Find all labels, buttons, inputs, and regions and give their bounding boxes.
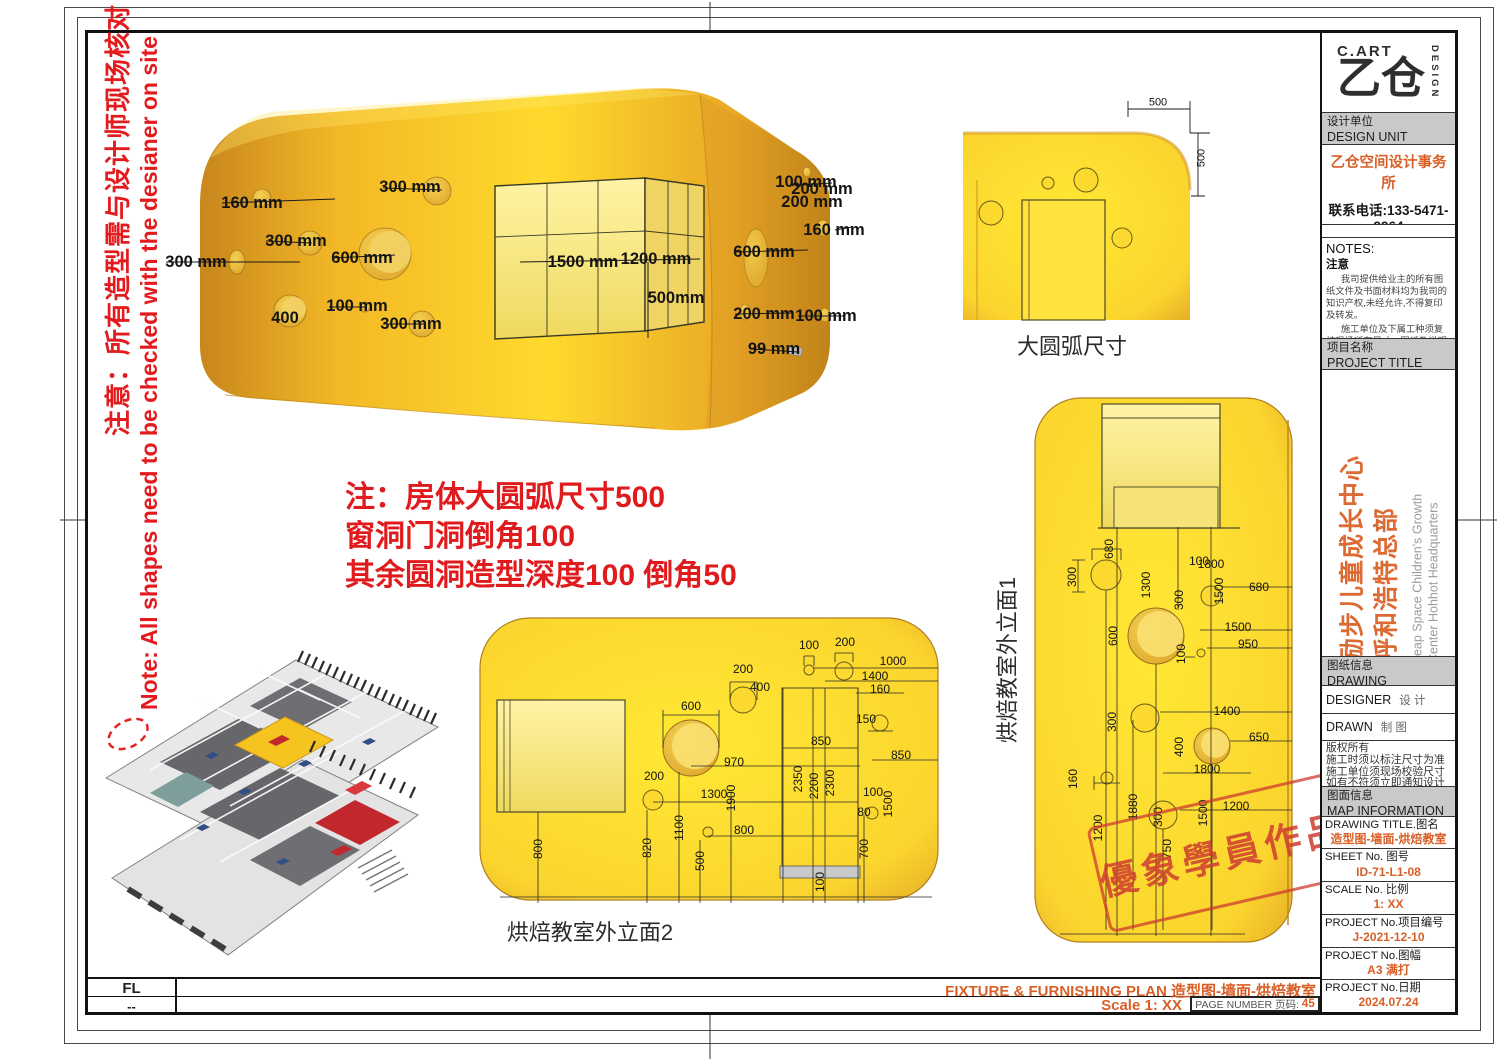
project-no-value: J-2021-12-10	[1325, 930, 1452, 946]
design-unit-header: 设计单位 DESIGN UNIT	[1322, 113, 1455, 145]
drawing-info-en: DRAWING INFORMATION	[1327, 674, 1450, 687]
project-no-row: PROJECT No.项目编号 J-2021-12-10	[1322, 915, 1455, 948]
project-title-header-en: PROJECT TITLE	[1327, 356, 1450, 371]
note-line-2: 窗洞门洞倒角100	[345, 517, 737, 556]
project-no-label: PROJECT No.项目编号	[1325, 916, 1452, 930]
design-unit-en: DESIGN UNIT	[1327, 130, 1450, 145]
drawing-sheet: 160 mm300 mm300 mm300 mm600 mm400100 mm3…	[0, 0, 1500, 1061]
logo-glyph: 乙仓	[1337, 57, 1425, 101]
elevation2-caption: 烘焙教室外立面2	[507, 915, 673, 947]
main-3d-view	[166, 88, 852, 430]
dimension-note: 注：房体大圆弧尺寸500 窗洞门洞倒角100 其余圆洞造型深度100 倒角50	[345, 478, 737, 595]
corner-detail-caption: 大圆弧尺寸	[1017, 329, 1127, 361]
page-number-label: PAGE NUMBER 页码:	[1195, 997, 1299, 1012]
sheet-no-row: SHEET No. 图号 ID-71-L1-08	[1322, 849, 1455, 882]
project-name-zh-line2: 呼和浩特总部	[1370, 370, 1404, 657]
location-marker-circle	[103, 713, 152, 756]
designer-zh: 设 计	[1399, 692, 1425, 708]
drawn-zh: 制 图	[1381, 719, 1407, 735]
designer-row: DESIGNER 设 计	[1322, 686, 1455, 714]
drawing-title-value: 造型图-墙面-烘焙教室	[1325, 832, 1452, 848]
elevation2-view	[480, 618, 938, 903]
date-row: PROJECT No.日期 2024.07.24	[1322, 980, 1455, 1012]
logo-design-vertical: DESIGN	[1429, 45, 1440, 99]
drawing-info-header: 图纸信息 DRAWING INFORMATION	[1322, 657, 1455, 686]
notes-paragraph-1: 我司提供给业主的所有图纸文件及书面材料均为我司的知识产权,未经允许,不得复印及转…	[1326, 273, 1451, 321]
project-name-en-line1: Leap Space Children's Growth	[1409, 370, 1425, 657]
sheet-size-value: A3 满打	[1325, 963, 1452, 979]
note-line-1: 注：房体大圆弧尺寸500	[345, 478, 737, 517]
company-logo: C.ART 乙仓 DESIGN	[1322, 33, 1455, 113]
sheet-size-label: PROJECT No.图幅	[1325, 949, 1452, 963]
sheet-no-value: ID-71-L1-08	[1325, 865, 1452, 881]
map-info-en: MAP INFORMATION	[1327, 804, 1450, 817]
site-note-english: Note: All shapes need to be checked with…	[136, 36, 163, 710]
fl-cell-divider	[175, 977, 177, 1012]
drawing-canvas	[0, 0, 1500, 1061]
scale-label: Scale 1: XX	[1101, 997, 1182, 1014]
page-number-box: PAGE NUMBER 页码: 45	[1190, 996, 1320, 1012]
title-block: C.ART 乙仓 DESIGN 设计单位 DESIGN UNIT 乙仓空间设计事…	[1322, 33, 1455, 1012]
project-title-header: 项目名称 PROJECT TITLE	[1322, 339, 1455, 370]
footer-top-line	[88, 977, 1320, 979]
corner-detail-view	[963, 101, 1210, 320]
notes-label-zh: 注意	[1326, 256, 1451, 272]
date-label: PROJECT No.日期	[1325, 981, 1452, 995]
notes-paragraph-2: 施工单位及下属工种须复核现场所有尺寸、图纸及说明如有出入应及时报告。	[1326, 323, 1451, 339]
spacer-row	[1322, 225, 1455, 238]
designer-label: DESIGNER	[1326, 693, 1391, 707]
design-unit-zh: 设计单位	[1327, 116, 1450, 130]
sheet-no-label: SHEET No. 图号	[1325, 850, 1452, 864]
date-value: 2024.07.24	[1325, 995, 1452, 1011]
site-note-chinese: 注意：所有造型需与设计师现场核对	[98, 4, 135, 436]
drawing-title-row: DRAWING TITLE.图名 造型图-墙面-烘焙教室	[1322, 817, 1455, 850]
fl-label: FL	[88, 980, 175, 997]
drawn-label: DRAWN	[1326, 720, 1373, 734]
copyright-line-2: 施工时须以标注尺寸为准	[1326, 755, 1451, 767]
notes-section: NOTES: 注意 我司提供给业主的所有图纸文件及书面材料均为我司的知识产权,未…	[1322, 238, 1455, 339]
drawing-title-label: DRAWING TITLE.图名	[1325, 818, 1452, 832]
company-name: 乙仓空间设计事务所	[1327, 151, 1450, 193]
contact-phone: 联系电话:133-5471-9964	[1327, 199, 1450, 225]
map-info-zh: 图面信息	[1327, 790, 1450, 804]
copyright-line-4: 如有不符须立即通知设计单位	[1326, 778, 1451, 787]
fl-dash: --	[88, 999, 175, 1014]
note-line-3: 其余圆洞造型深度100 倒角50	[345, 556, 737, 595]
design-unit-info: 乙仓空间设计事务所 联系电话:133-5471-9964 COOPERATIVE…	[1322, 145, 1455, 225]
copyright-notes: 版权所有 施工时须以标注尺寸为准 施工单位须现场校验尺寸 如有不符须立即通知设计…	[1322, 741, 1455, 787]
page-number-value: 45	[1302, 998, 1315, 1010]
scale-no-row: SCALE No. 比例 1: XX	[1322, 882, 1455, 915]
project-title-area: 励步儿童成长中心 呼和浩特总部 Leap Space Children's Gr…	[1322, 370, 1455, 657]
elevation1-caption: 烘焙教室外立面1	[990, 577, 1022, 743]
drawn-row: DRAWN 制 图	[1322, 714, 1455, 742]
project-title-header-zh: 项目名称	[1327, 342, 1450, 356]
notes-label-en: NOTES:	[1326, 241, 1451, 256]
drawing-info-zh: 图纸信息	[1327, 660, 1450, 674]
project-name-en-line2: Center Hohhot Headquarters	[1425, 370, 1441, 657]
sheet-size-row: PROJECT No.图幅 A3 满打	[1322, 948, 1455, 981]
map-info-header: 图面信息 MAP INFORMATION	[1322, 787, 1455, 816]
scale-no-label: SCALE No. 比例	[1325, 883, 1452, 897]
project-name-zh-line1: 励步儿童成长中心	[1336, 370, 1370, 657]
map-info-rows: DRAWING TITLE.图名 造型图-墙面-烘焙教室 SHEET No. 图…	[1322, 817, 1455, 1012]
scale-no-value: 1: XX	[1325, 897, 1452, 913]
